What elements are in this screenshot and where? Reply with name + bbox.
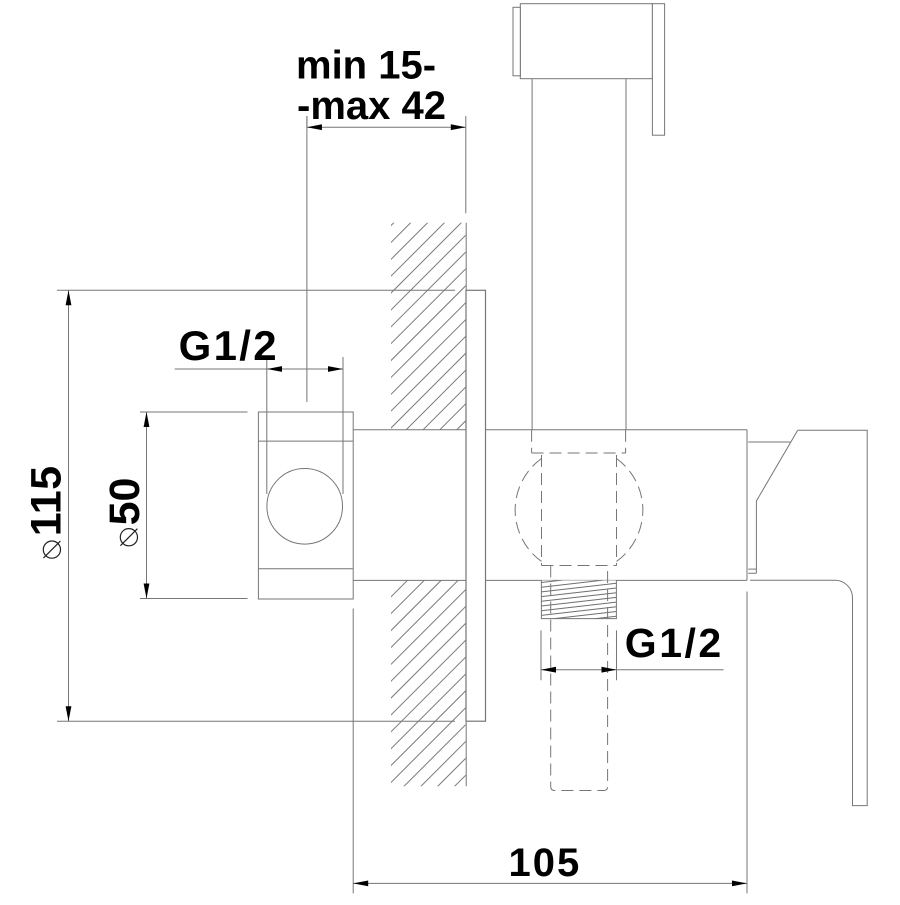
svg-text:G1/2: G1/2 <box>179 322 279 369</box>
svg-text:50: 50 <box>101 478 149 526</box>
svg-text:-max 42: -max 42 <box>297 84 446 128</box>
svg-text:min 15-: min 15- <box>296 44 436 88</box>
svg-text:115: 115 <box>22 465 70 536</box>
svg-text:105: 105 <box>509 841 582 885</box>
svg-text:G1/2: G1/2 <box>625 620 724 666</box>
